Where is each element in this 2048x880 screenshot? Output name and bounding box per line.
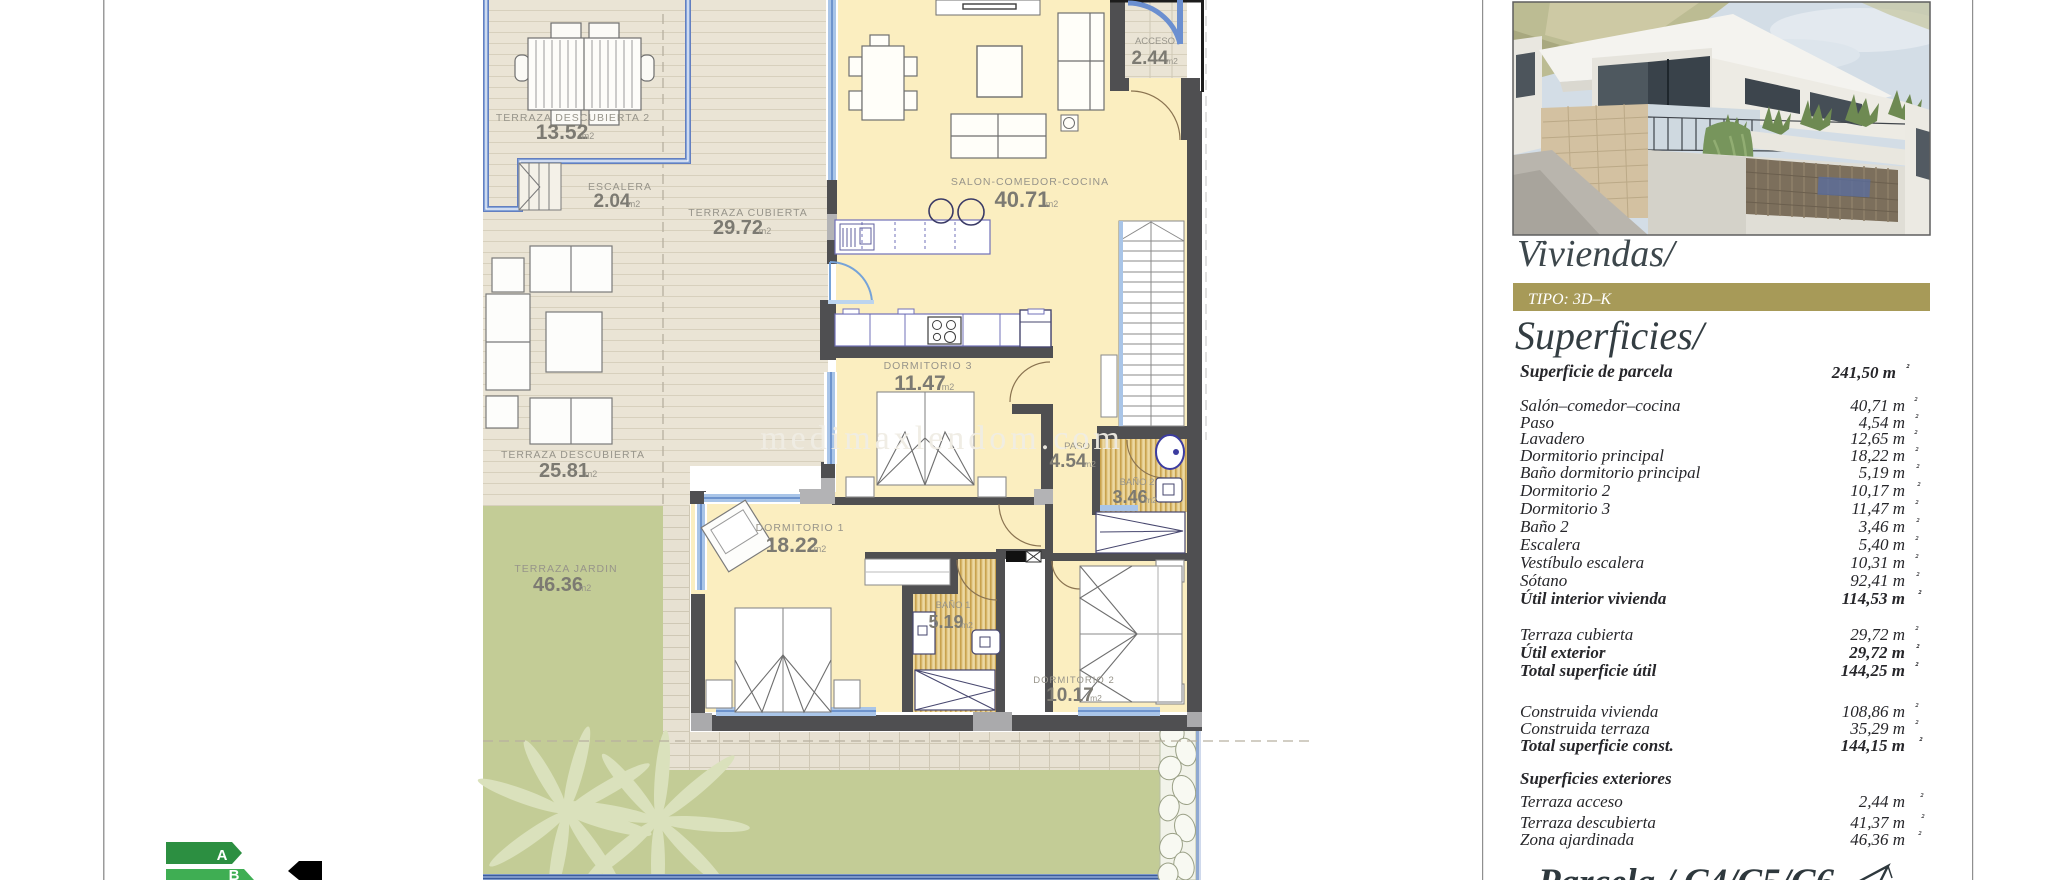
svg-text:92,41 m: 92,41 m <box>1850 571 1905 590</box>
svg-text:Zona ajardinada: Zona ajardinada <box>1520 830 1634 849</box>
svg-text:3,46 m: 3,46 m <box>1858 517 1905 536</box>
svg-text:114,53 m: 114,53 m <box>1842 589 1905 608</box>
svg-text:Superficie de parcela: Superficie de parcela <box>1520 361 1673 381</box>
svg-text:²: ² <box>1915 718 1919 730</box>
svg-text:²: ² <box>1916 570 1920 582</box>
svg-text:²: ² <box>1916 642 1920 654</box>
svg-text:m2: m2 <box>579 583 592 593</box>
svg-text:²: ² <box>1915 701 1919 713</box>
svg-text:²: ² <box>1918 588 1922 600</box>
svg-text:²: ² <box>1918 829 1922 841</box>
svg-text:Baño 2: Baño 2 <box>1520 517 1569 536</box>
svg-text:18.22: 18.22 <box>766 534 819 557</box>
svg-text:Terraza acceso: Terraza acceso <box>1520 792 1623 811</box>
svg-text:m2: m2 <box>1166 56 1178 66</box>
svg-text:Útil exterior: Útil exterior <box>1520 643 1606 662</box>
svg-text:m2: m2 <box>1145 495 1157 505</box>
svg-text:2.04: 2.04 <box>594 191 631 212</box>
svg-text:BAÑO 1: BAÑO 1 <box>936 600 971 611</box>
svg-text:TIPO: 3D–K: TIPO: 3D–K <box>1528 291 1612 308</box>
svg-text:46.36: 46.36 <box>533 574 583 596</box>
svg-text:m2: m2 <box>759 226 772 236</box>
svg-text:m2: m2 <box>585 469 598 479</box>
svg-text:²: ² <box>1915 660 1919 672</box>
svg-text:10,31 m: 10,31 m <box>1850 553 1905 572</box>
svg-text:5,40 m: 5,40 m <box>1859 535 1905 554</box>
svg-text:2.44: 2.44 <box>1132 48 1169 69</box>
svg-text:46,36 m: 46,36 m <box>1850 830 1905 849</box>
svg-text:Sótano: Sótano <box>1520 571 1567 590</box>
svg-text:m2: m2 <box>1046 199 1059 209</box>
svg-text:m2: m2 <box>942 382 955 392</box>
svg-text:²: ² <box>1917 480 1921 492</box>
svg-text:Dormitorio 3: Dormitorio 3 <box>1519 499 1610 518</box>
svg-text:m2: m2 <box>1084 459 1096 469</box>
svg-text:13.52: 13.52 <box>536 121 589 144</box>
svg-text:²: ² <box>1915 412 1919 424</box>
svg-text:²: ² <box>1916 516 1920 528</box>
svg-text:144,25 m: 144,25 m <box>1841 661 1905 680</box>
svg-text:²: ² <box>1906 362 1910 374</box>
svg-text:m2: m2 <box>814 544 827 554</box>
svg-text:29,72 m: 29,72 m <box>1850 625 1905 644</box>
svg-text:²: ² <box>1915 552 1919 564</box>
svg-text:²: ² <box>1919 735 1923 747</box>
svg-text:medimaxlendom.com: medimaxlendom.com <box>760 420 1124 457</box>
svg-text:B: B <box>229 867 240 880</box>
svg-text:40.71: 40.71 <box>994 187 1049 212</box>
svg-text:Escalera: Escalera <box>1519 535 1580 554</box>
svg-text:²: ² <box>1915 445 1919 457</box>
svg-text:10.17: 10.17 <box>1046 685 1094 706</box>
svg-text:A: A <box>217 847 228 864</box>
svg-text:29,72 m: 29,72 m <box>1848 643 1905 662</box>
svg-text:m2: m2 <box>961 620 973 630</box>
svg-text:²: ² <box>1915 498 1919 510</box>
svg-text:m2: m2 <box>1090 693 1102 703</box>
svg-text:3.46: 3.46 <box>1112 487 1147 507</box>
svg-text:Terraza cubierta: Terraza cubierta <box>1520 625 1633 644</box>
svg-text:5.19: 5.19 <box>928 612 963 632</box>
svg-text:11.47: 11.47 <box>894 372 945 395</box>
svg-text:Superficies exteriores: Superficies exteriores <box>1520 769 1672 788</box>
svg-text:²: ² <box>1914 428 1918 440</box>
svg-text:25.81: 25.81 <box>539 460 589 482</box>
svg-text:²: ² <box>1914 395 1918 407</box>
svg-text:Vestíbulo escalera: Vestíbulo escalera <box>1520 553 1644 572</box>
svg-text:241,50 m: 241,50 m <box>1831 363 1896 382</box>
svg-text:10,17 m: 10,17 m <box>1850 481 1905 500</box>
svg-text:11,47 m: 11,47 m <box>1851 499 1905 518</box>
svg-text:Total superficie const.: Total superficie const. <box>1520 736 1674 755</box>
svg-text:29.72: 29.72 <box>713 217 763 239</box>
svg-text:m2: m2 <box>582 131 595 141</box>
svg-text:²: ² <box>1921 812 1925 824</box>
svg-text:DORMITORIO 1: DORMITORIO 1 <box>756 522 845 534</box>
svg-text:2,44 m: 2,44 m <box>1859 792 1905 811</box>
svg-text:²: ² <box>1915 534 1919 546</box>
svg-text:²: ² <box>1920 791 1924 803</box>
svg-text:Baño dormitorio principal: Baño dormitorio principal <box>1520 463 1701 482</box>
svg-text:m2: m2 <box>628 199 641 209</box>
svg-text:Viviendas/: Viviendas/ <box>1517 233 1678 275</box>
svg-text:Parcela / C4/C5/C6: Parcela / C4/C5/C6 <box>1537 862 1835 880</box>
svg-text:²: ² <box>1916 462 1920 474</box>
svg-text:ACCESO: ACCESO <box>1135 36 1175 47</box>
svg-text:Total superficie útil: Total superficie útil <box>1520 661 1657 680</box>
svg-text:Útil interior vivienda: Útil interior vivienda <box>1520 589 1667 608</box>
svg-text:5,19 m: 5,19 m <box>1859 463 1905 482</box>
svg-text:²: ² <box>1915 624 1919 636</box>
svg-text:DORMITORIO 3: DORMITORIO 3 <box>884 360 973 372</box>
svg-text:144,15 m: 144,15 m <box>1841 736 1905 755</box>
svg-text:Superficies/: Superficies/ <box>1515 313 1708 358</box>
svg-text:Dormitorio 2: Dormitorio 2 <box>1519 481 1611 500</box>
